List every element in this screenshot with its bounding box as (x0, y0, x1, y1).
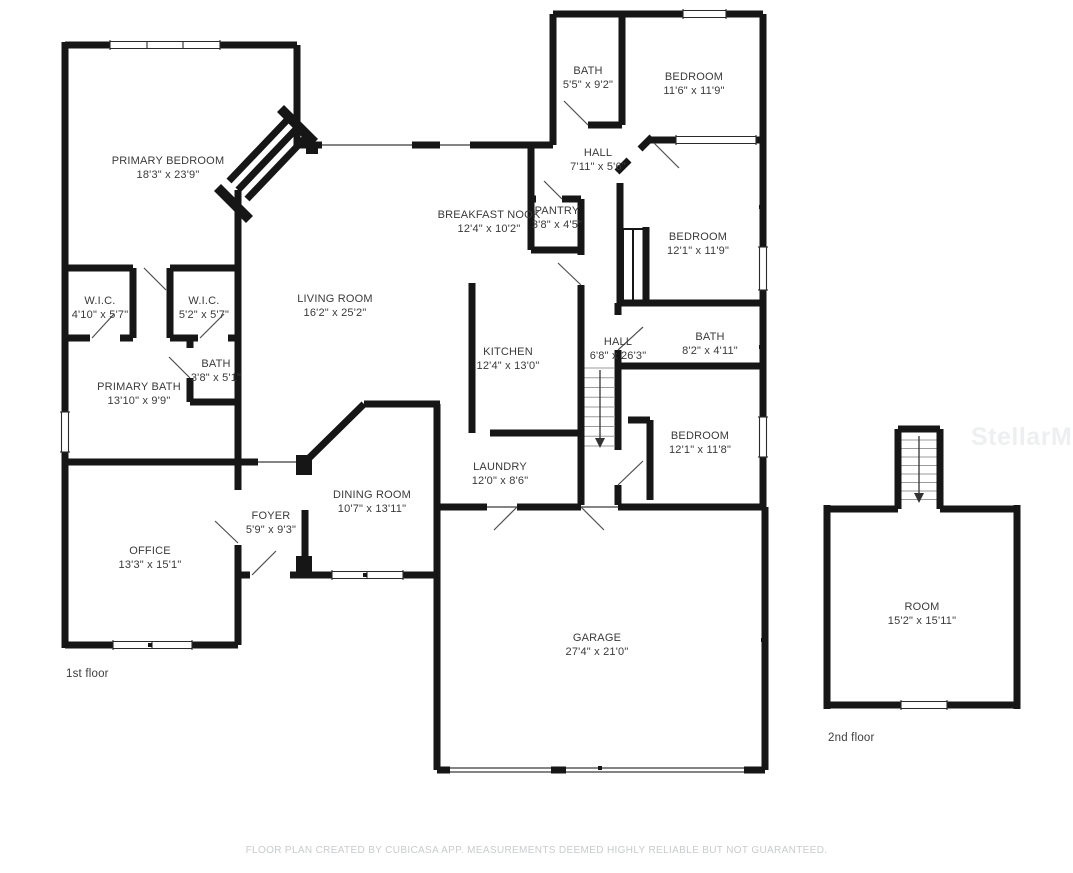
room-label: BREAKFAST NOOK12'4" x 10'2" (438, 209, 541, 236)
floor-label-2nd: 2nd floor (828, 732, 875, 744)
floorplan-page: PRIMARY BEDROOM18'3" x 23'9"W.I.C.4'10" … (0, 0, 1073, 873)
room-label: BEDROOM12'1" x 11'9" (667, 231, 729, 258)
room-name: HALL (584, 147, 612, 159)
room-name: FOYER (252, 510, 291, 522)
wall-tick-marks (62, 12, 1018, 770)
room-label: LAUNDRY12'0" x 8'6" (472, 461, 529, 488)
room-label: LIVING ROOM16'2" x 25'2" (297, 293, 373, 320)
room-dimensions: 12'0" x 8'6" (472, 475, 529, 489)
room-name: BATH (573, 65, 602, 77)
room-name: OFFICE (129, 545, 171, 557)
room-dimensions: 27'4" x 21'0" (566, 646, 629, 660)
room-name: BEDROOM (671, 430, 729, 442)
room-dimensions: 7'11" x 5'6" (570, 161, 626, 175)
room-name: BEDROOM (669, 231, 727, 243)
room-label: ROOM15'2" x 15'11" (888, 601, 956, 628)
room-dimensions: 12'4" x 10'2" (438, 223, 541, 237)
room-dimensions: 11'6" x 11'9" (663, 85, 724, 99)
room-name: W.I.C. (84, 295, 115, 307)
stairs-down-arrow-2nd (914, 436, 924, 503)
window-2nd-floor-room (901, 700, 947, 710)
room-label: W.I.C.4'10" x 5'7" (72, 295, 129, 322)
room-label: DINING ROOM10'7" x 13'11" (333, 489, 411, 516)
room-label: BATH8'2" x 4'11" (682, 331, 738, 358)
room-name: BREAKFAST NOOK (438, 209, 541, 221)
window-dining (332, 570, 403, 580)
window-primary-bath (60, 412, 70, 452)
room-name: GARAGE (573, 632, 621, 644)
room-name: LIVING ROOM (297, 293, 373, 305)
room-dimensions: 12'4" x 13'0" (477, 360, 540, 374)
room-dimensions: 13'3" x 15'1" (119, 559, 182, 573)
room-name: HALL (604, 336, 632, 348)
floor-label-1st: 1st floor (66, 668, 109, 680)
window-mid-bedroom-top (676, 135, 756, 145)
room-dimensions: 15'2" x 15'11" (888, 615, 956, 629)
room-label: BATH3'8" x 5'1" (191, 358, 241, 385)
room-label: GARAGE27'4" x 21'0" (566, 632, 629, 659)
room-name: DINING ROOM (333, 489, 411, 501)
room-dimensions: 10'7" x 13'11" (333, 503, 411, 517)
room-name: BEDROOM (665, 71, 723, 83)
room-name: LAUNDRY (473, 461, 527, 473)
room-name: PRIMARY BATH (97, 381, 181, 393)
room-label: BEDROOM11'6" x 11'9" (663, 71, 724, 98)
room-label: HALL7'11" x 5'6" (570, 147, 626, 174)
floorplan-drawing (0, 0, 1073, 873)
room-dimensions: 12'1" x 11'8" (669, 444, 731, 458)
room-name: PANTRY (535, 205, 580, 217)
room-dimensions: 3'8" x 4'5" (532, 219, 582, 233)
room-label: BATH5'5" x 9'2" (563, 65, 613, 92)
room-dimensions: 8'2" x 4'11" (682, 345, 738, 359)
room-label: PRIMARY BATH13'10" x 9'9" (97, 381, 181, 408)
room-name: BATH (695, 331, 724, 343)
room-dimensions: 5'9" x 9'3" (246, 524, 296, 538)
room-dimensions: 18'3" x 23'9" (112, 169, 225, 183)
room-dimensions: 5'5" x 9'2" (563, 79, 613, 93)
room-dimensions: 5'2" x 5'7" (179, 309, 229, 323)
fireplace-icon (214, 105, 318, 223)
room-dimensions: 6'8" x 26'3" (590, 350, 647, 364)
room-name: W.I.C. (188, 295, 219, 307)
window-mid-bedroom-right (758, 247, 768, 290)
room-dimensions: 13'10" x 9'9" (97, 395, 181, 409)
room-label: PRIMARY BEDROOM18'3" x 23'9" (112, 155, 225, 182)
window-bottom-bedroom-right (758, 417, 768, 457)
window-top-bedroom (683, 9, 726, 19)
walls-group (65, 14, 1017, 770)
room-dimensions: 4'10" x 5'7" (72, 309, 129, 323)
room-label: OFFICE13'3" x 15'1" (119, 545, 182, 572)
closet-partition-group (623, 229, 644, 301)
room-label: PANTRY3'8" x 4'5" (532, 205, 582, 232)
room-label: HALL6'8" x 26'3" (590, 336, 647, 363)
window-primary-bedroom (110, 40, 220, 50)
room-dimensions: 16'2" x 25'2" (297, 307, 373, 321)
room-name: ROOM (904, 601, 939, 613)
room-label: BEDROOM12'1" x 11'8" (669, 430, 731, 457)
room-label: KITCHEN12'4" x 13'0" (477, 346, 540, 373)
room-dimensions: 12'1" x 11'9" (667, 245, 729, 259)
stellar-mls-watermark: StellarMLS (971, 423, 1073, 452)
room-name: KITCHEN (483, 346, 533, 358)
room-name: BATH (201, 358, 230, 370)
window-office (113, 640, 192, 650)
room-label: FOYER5'9" x 9'3" (246, 510, 296, 537)
footer-disclaimer: FLOOR PLAN CREATED BY CUBICASA APP. MEAS… (0, 845, 1073, 856)
room-label: W.I.C.5'2" x 5'7" (179, 295, 229, 322)
room-dimensions: 3'8" x 5'1" (191, 372, 241, 386)
room-name: PRIMARY BEDROOM (112, 155, 225, 167)
